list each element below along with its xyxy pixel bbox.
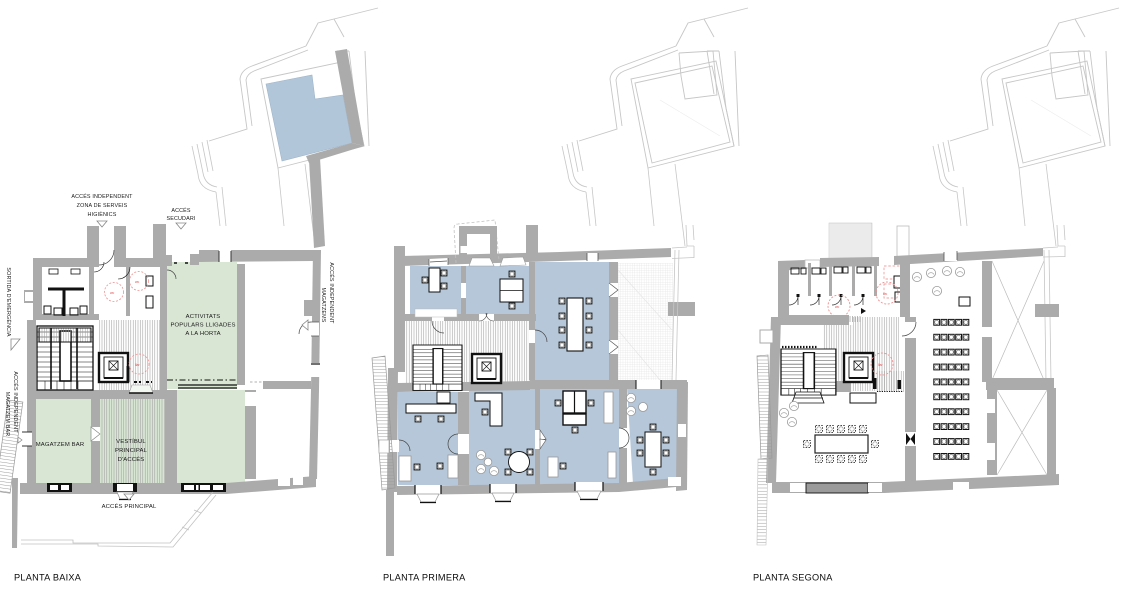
- svg-text:SECUDARI: SECUDARI: [166, 216, 195, 222]
- svg-text:ACCÉS PRINCIPAL: ACCÉS PRINCIPAL: [102, 503, 157, 510]
- svg-text:wc: wc: [835, 305, 840, 309]
- svg-text:SORTIDA D'EMERGÈNCIA: SORTIDA D'EMERGÈNCIA: [5, 267, 12, 336]
- svg-text:PRINCIPAL: PRINCIPAL: [115, 448, 148, 454]
- svg-text:ACCÉS: ACCÉS: [171, 207, 191, 214]
- svg-text:ACCÉS INDEPENDENT: ACCÉS INDEPENDENT: [328, 262, 335, 324]
- svg-text:HIGIÈNICS: HIGIÈNICS: [88, 211, 117, 218]
- svg-text:wc: wc: [110, 291, 115, 295]
- svg-text:A LA HORTA: A LA HORTA: [185, 331, 220, 337]
- svg-text:PLANTA BAIXA: PLANTA BAIXA: [14, 573, 82, 583]
- svg-text:D'ACCÉS: D'ACCÉS: [118, 456, 145, 463]
- svg-text:MAGATZEM BAR: MAGATZEM BAR: [36, 442, 85, 448]
- svg-text:ACTIVITATS: ACTIVITATS: [186, 314, 221, 320]
- svg-text:PLANTA PRIMERA: PLANTA PRIMERA: [383, 573, 466, 583]
- svg-text:ACCÉS INDEPENDENT: ACCÉS INDEPENDENT: [71, 193, 133, 200]
- svg-text:VESTÍBUL: VESTÍBUL: [116, 438, 146, 445]
- svg-text:ZONA DE SERVEIS: ZONA DE SERVEIS: [77, 203, 128, 209]
- svg-text:POPULARS LLIGADES: POPULARS LLIGADES: [170, 323, 235, 329]
- svg-text:PLANTA SEGONA: PLANTA SEGONA: [753, 573, 833, 583]
- svg-text:MAGATZEMS: MAGATZEMS: [320, 287, 326, 322]
- svg-text:wc: wc: [883, 292, 888, 296]
- svg-text:MAGATZEM BAR: MAGATZEM BAR: [4, 392, 10, 437]
- svg-text:ACCÉS INDEPENDENT: ACCÉS INDEPENDENT: [12, 371, 19, 433]
- svg-text:wc: wc: [135, 280, 140, 284]
